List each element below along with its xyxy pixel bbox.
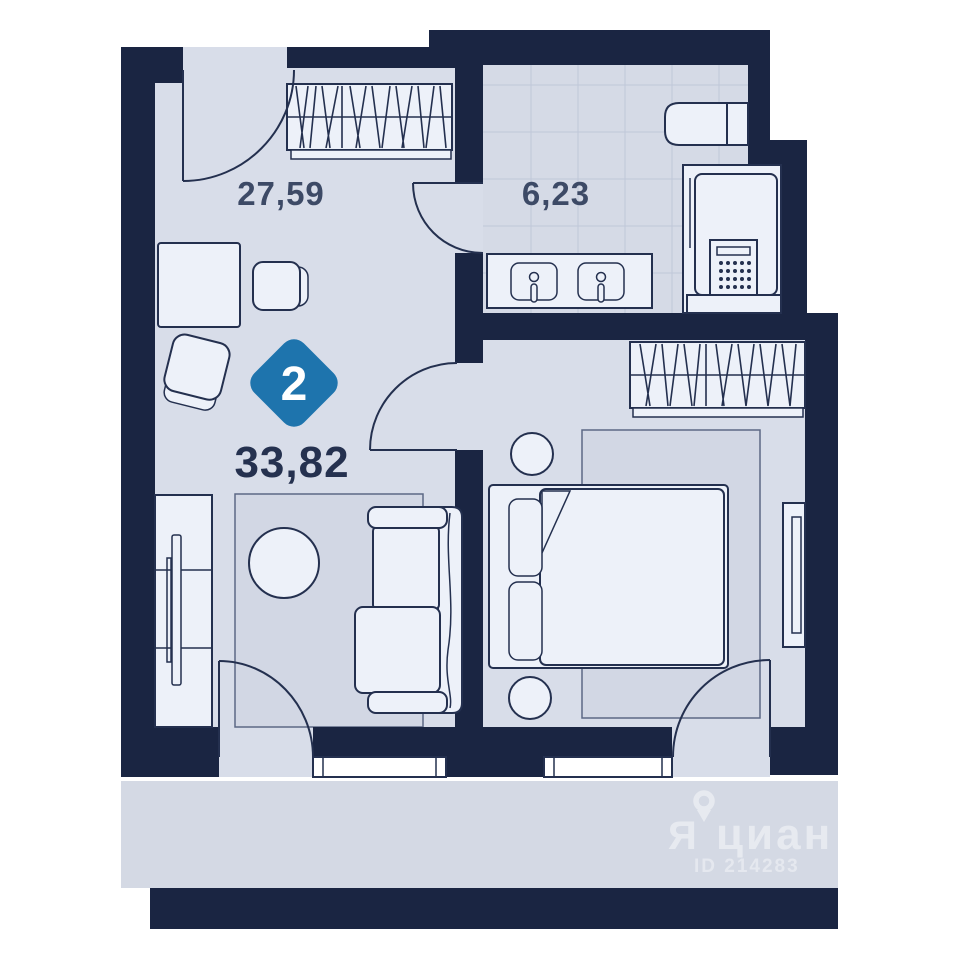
desk	[158, 243, 240, 327]
watermark-id: ID 214283	[694, 856, 800, 877]
pillow-2	[509, 582, 542, 660]
wall-bathroom-right	[748, 30, 770, 140]
window-living	[313, 757, 446, 777]
bedroom-balcony-opening	[672, 727, 770, 777]
pillow-1	[509, 499, 542, 576]
sofa-cushion-2	[355, 607, 440, 693]
wall-left	[121, 47, 155, 777]
floorplan-page: 27,59 6,23 2 33,82 Я циан ID 214283	[0, 0, 960, 960]
faucet-1-stem	[531, 284, 537, 302]
bedroom-door-opening	[455, 363, 483, 450]
side-table-top	[511, 433, 553, 475]
floorplan-canvas: 27,59 6,23 2 33,82 Я циан ID 214283	[0, 0, 960, 960]
window-bedroom	[544, 757, 672, 777]
wall-bottom-1	[121, 727, 219, 777]
bathroom-door-opening	[455, 183, 483, 253]
balcony-parapet	[150, 888, 838, 929]
sofa-armrest-bottom	[368, 692, 447, 713]
sofa-backrest	[438, 507, 462, 713]
water-heater	[683, 165, 781, 313]
wall-bottom-3	[446, 727, 544, 777]
tv-living	[172, 535, 181, 685]
side-table-bottom	[509, 677, 551, 719]
chair-tilted-seat	[162, 332, 232, 402]
rooms-count: 2	[281, 358, 308, 411]
wall-center-upper	[455, 47, 483, 183]
bathroom-area-label: 6,23	[522, 175, 590, 212]
wardrobe-bedroom-base	[633, 408, 803, 417]
wardrobe-living-base	[291, 150, 451, 159]
water-heater-slot	[717, 247, 750, 255]
entrance-opening	[183, 47, 287, 68]
wall-right	[805, 315, 838, 775]
toilet	[665, 103, 748, 145]
total-area-label: 33,82	[234, 438, 349, 487]
living-balcony-opening	[219, 727, 313, 777]
coffee-table	[249, 528, 319, 598]
wall-bottom-4	[544, 727, 672, 757]
wall-bottom-5	[770, 727, 838, 775]
watermark-logo-letter: Я	[668, 814, 697, 858]
wall-bottom-2	[313, 727, 446, 757]
water-heater-base	[687, 295, 781, 313]
chair	[253, 262, 300, 310]
wall-entrance-stub	[121, 47, 183, 83]
wall-center-middle	[455, 253, 483, 363]
balcony-separator	[121, 777, 838, 781]
sofa-armrest-top	[368, 507, 447, 528]
bed-blanket	[540, 489, 724, 665]
tv-stand	[155, 495, 212, 727]
bed	[489, 485, 728, 668]
sink-counter	[487, 254, 652, 308]
living-room-area-label: 27,59	[237, 175, 325, 212]
wall-bathroom-bottom	[455, 313, 838, 340]
faucet-2-stem	[598, 284, 604, 302]
sofa-cushion-1	[373, 527, 439, 609]
watermark-brand: циан	[716, 810, 833, 859]
